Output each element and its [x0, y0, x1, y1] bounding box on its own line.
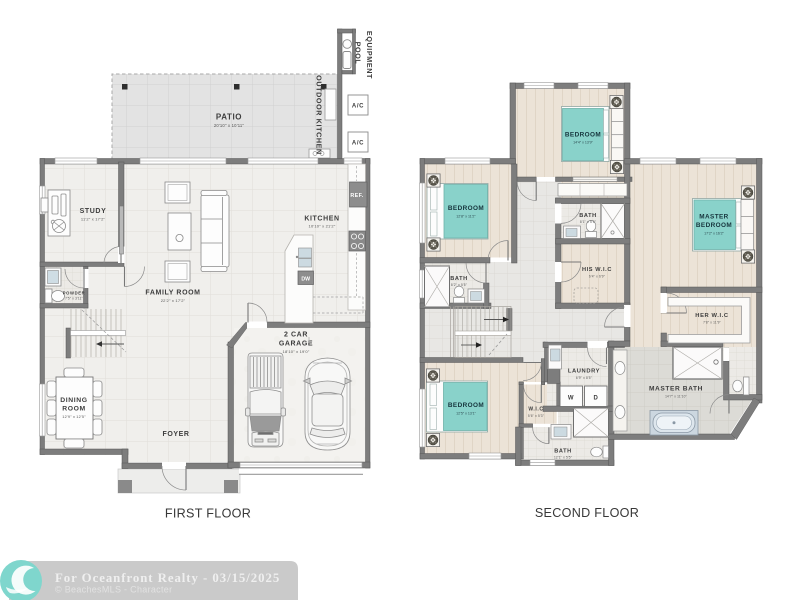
svg-text:MASTER: MASTER — [699, 214, 728, 221]
svg-text:A/C: A/C — [352, 104, 364, 110]
svg-text:ROOM: ROOM — [62, 406, 86, 413]
svg-text:2 CAR: 2 CAR — [284, 332, 308, 339]
svg-text:14'4" x 13'9": 14'4" x 13'9" — [573, 141, 593, 145]
svg-text:A/C: A/C — [352, 141, 364, 147]
svg-text:BEDROOM: BEDROOM — [696, 222, 732, 229]
svg-text:For Oceanfront Realty - 03/15/: For Oceanfront Realty - 03/15/2025 — [55, 571, 280, 585]
svg-text:8'1" x 5'5": 8'1" x 5'5" — [580, 220, 596, 224]
svg-text:KITCHEN: KITCHEN — [304, 216, 339, 223]
svg-text:20'10" x 10'11": 20'10" x 10'11" — [214, 123, 245, 128]
svg-text:POWDER: POWDER — [63, 291, 85, 296]
svg-text:10'10" x 21'2": 10'10" x 21'2" — [309, 224, 336, 229]
svg-text:FIRST FLOOR: FIRST FLOOR — [165, 507, 251, 521]
svg-text:12'9" x 12'5": 12'9" x 12'5" — [62, 415, 86, 419]
svg-text:FOYER: FOYER — [162, 431, 189, 438]
svg-text:12'5" x 13'1": 12'5" x 13'1" — [456, 412, 476, 416]
svg-text:DW: DW — [301, 277, 310, 283]
svg-text:BATH: BATH — [579, 213, 597, 219]
svg-text:OUTDOOR KITCHEN: OUTDOOR KITCHEN — [315, 75, 324, 155]
svg-text:12'8" x 11'2": 12'8" x 11'2" — [456, 215, 476, 219]
svg-text:PATIO: PATIO — [216, 113, 242, 122]
svg-text:5'6" x 5'3": 5'6" x 5'3" — [528, 414, 544, 418]
svg-text:BEDROOM: BEDROOM — [448, 205, 484, 212]
svg-text:BATH: BATH — [554, 449, 572, 455]
svg-text:W: W — [568, 396, 574, 402]
svg-text:FAMILY ROOM: FAMILY ROOM — [145, 290, 200, 297]
svg-text:W.I.C: W.I.C — [528, 407, 543, 413]
svg-text:18'10" x 19'0": 18'10" x 19'0" — [283, 349, 310, 354]
svg-text:STUDY: STUDY — [80, 208, 107, 215]
svg-text:6'9" x 8'5": 6'9" x 8'5" — [576, 376, 592, 380]
svg-text:© BeachesMLS - Character: © BeachesMLS - Character — [55, 585, 172, 595]
svg-text:HIS W.I.C: HIS W.I.C — [582, 267, 612, 273]
svg-text:7'8" x 11'9": 7'8" x 11'9" — [703, 321, 721, 325]
svg-text:12'1" x 5'5": 12'1" x 5'5" — [554, 456, 572, 460]
svg-text:22'2" x 17'2": 22'2" x 17'2" — [161, 298, 186, 303]
svg-text:REF.: REF. — [350, 193, 363, 199]
svg-text:14'7" x 11'10": 14'7" x 11'10" — [665, 395, 687, 399]
svg-text:7'5" x 3'11": 7'5" x 3'11" — [65, 297, 83, 301]
svg-text:SECOND FLOOR: SECOND FLOOR — [535, 506, 639, 520]
svg-text:MASTER BATH: MASTER BATH — [649, 386, 703, 393]
svg-text:GARAGE: GARAGE — [279, 341, 313, 348]
svg-text:6'4" x 6'9": 6'4" x 6'9" — [589, 275, 605, 279]
svg-text:LAUNDRY: LAUNDRY — [568, 369, 600, 375]
svg-text:POOL: POOL — [354, 42, 363, 65]
svg-text:HER W.I.C: HER W.I.C — [695, 313, 729, 319]
svg-text:D: D — [594, 396, 599, 402]
svg-text:11'2" x 17'2": 11'2" x 17'2" — [81, 217, 106, 222]
svg-text:EQUIPMENT: EQUIPMENT — [365, 31, 374, 79]
svg-text:17'2" x 16'2": 17'2" x 16'2" — [704, 232, 724, 236]
svg-text:BEDROOM: BEDROOM — [565, 132, 601, 139]
svg-text:DINING: DINING — [60, 397, 87, 404]
svg-text:8'2" x 5'5": 8'2" x 5'5" — [451, 283, 467, 287]
svg-text:BATH: BATH — [450, 276, 468, 282]
svg-text:BEDROOM: BEDROOM — [448, 402, 484, 409]
